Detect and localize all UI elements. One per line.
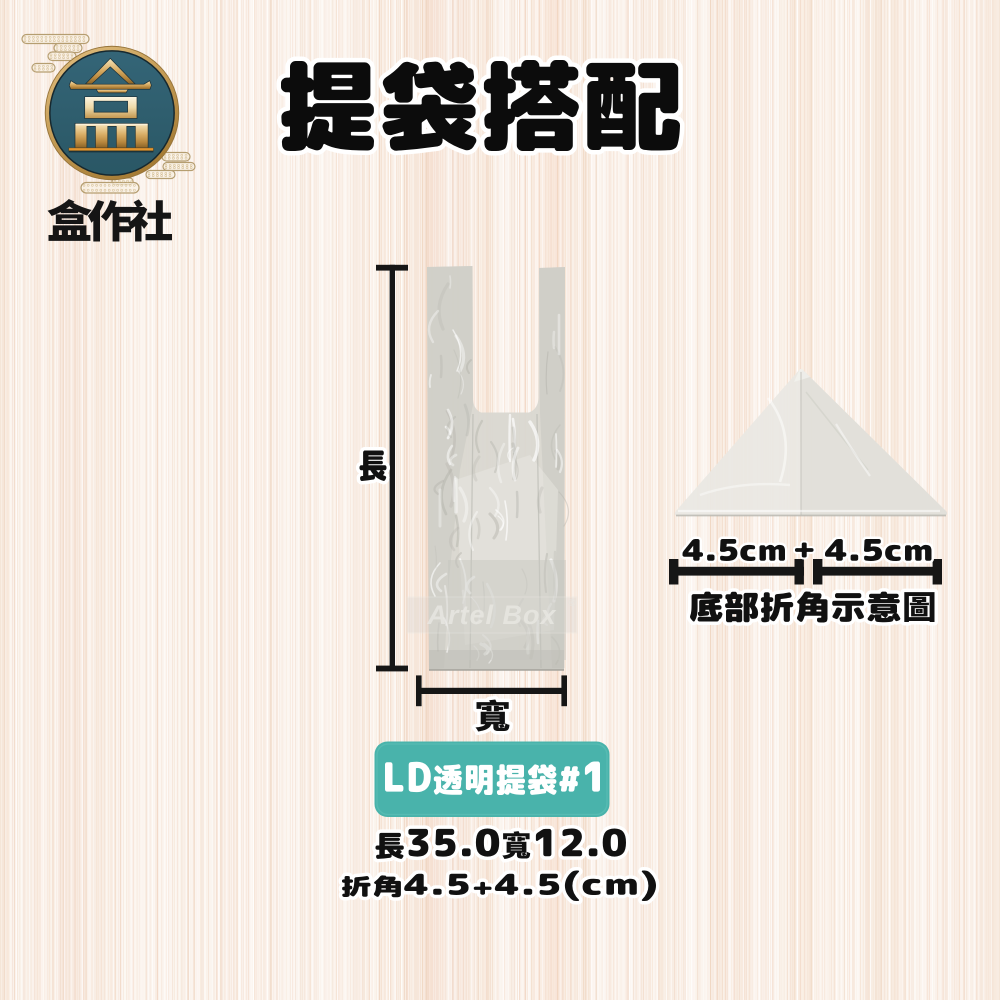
svg-text:®: ® [568, 598, 576, 609]
svg-text:Artel Box: Artel Box [426, 600, 556, 630]
